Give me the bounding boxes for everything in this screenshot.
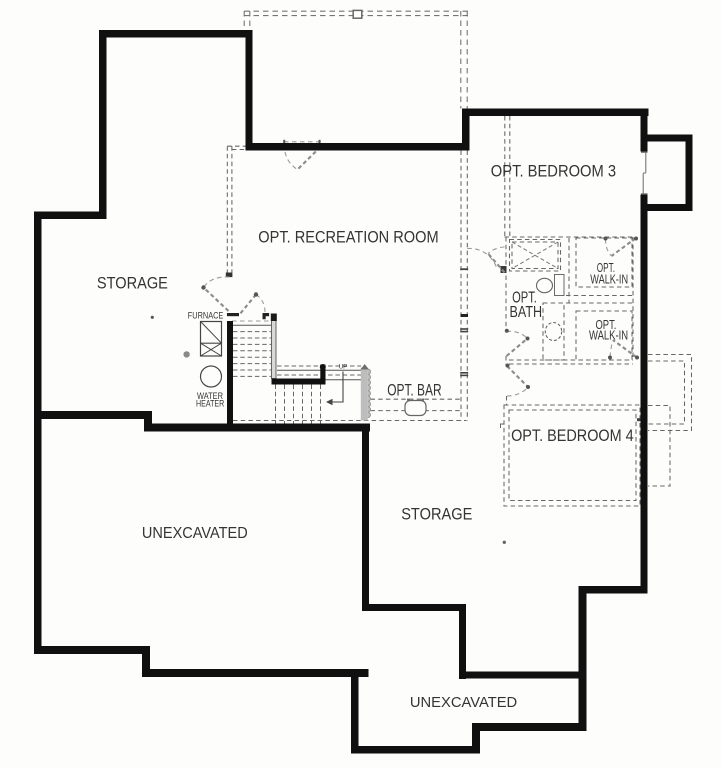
svg-text:OPT. RECREATION ROOM: OPT. RECREATION ROOM [258, 229, 438, 247]
svg-text:UP: UP [339, 363, 348, 370]
svg-text:BATH: BATH [510, 304, 543, 321]
svg-text:OPT. BEDROOM 4: OPT. BEDROOM 4 [511, 426, 634, 445]
svg-text:HEATER: HEATER [196, 398, 224, 409]
svg-text:UNEXCAVATED: UNEXCAVATED [142, 525, 248, 542]
svg-text:UNEXCAVATED: UNEXCAVATED [410, 694, 517, 711]
svg-text:OPT. BAR: OPT. BAR [387, 381, 441, 399]
svg-text:STORAGE: STORAGE [401, 504, 472, 523]
svg-text:WALK-IN: WALK-IN [590, 272, 628, 287]
svg-text:WALK-IN: WALK-IN [589, 328, 628, 343]
svg-text:STORAGE: STORAGE [97, 274, 168, 293]
svg-text:OPT. BEDROOM 3: OPT. BEDROOM 3 [491, 161, 616, 180]
svg-text:FURNACE: FURNACE [188, 311, 224, 321]
